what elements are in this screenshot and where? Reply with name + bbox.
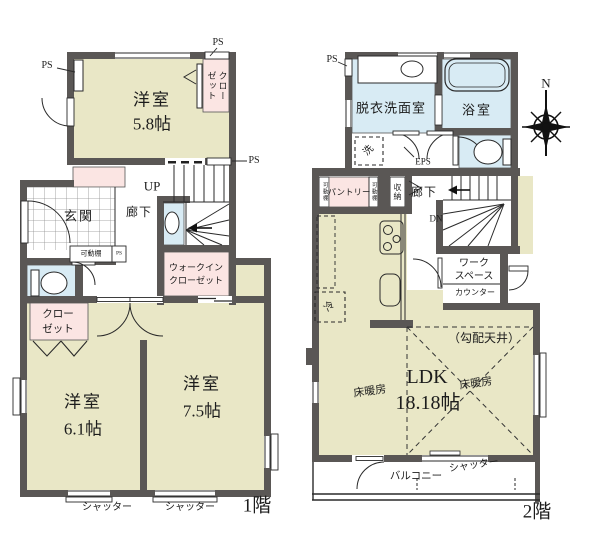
ldk-label: LDK <box>406 367 447 387</box>
sink-icon <box>401 61 423 77</box>
bathtub-icon <box>445 59 509 91</box>
movable-shelf-label-left: 可動棚 <box>321 182 327 202</box>
movable-shelf-label-right: 可動棚 <box>370 182 376 202</box>
room-61-label: 洋室 <box>64 394 102 411</box>
hallway-label-1f: 廊下 <box>126 206 152 218</box>
shutter-label-1: シャッター <box>82 503 132 513</box>
window-75-right <box>264 434 278 470</box>
ps-shaft-1f <box>74 60 83 91</box>
wic-label-1: ウォークイン <box>169 264 223 273</box>
eps-label: EPS <box>415 158 431 167</box>
genkan-label: 玄関 <box>64 210 94 223</box>
ps-label-1: PS <box>41 61 52 71</box>
movable-shelf-label-1f: 可動棚 <box>81 251 102 258</box>
bathroom-label: 浴室 <box>462 104 492 117</box>
sloped-ceiling-label: （勾配天井） <box>448 332 520 344</box>
washroom-label: 脱衣洗面室 <box>356 102 426 115</box>
window-61-bottom <box>66 490 112 502</box>
walk-in-closet-room <box>164 252 229 296</box>
dn-label: DN <box>430 215 443 224</box>
workspace-label-2: スペース <box>455 272 494 282</box>
closet-58-label-1: クロー <box>218 71 227 101</box>
balcony-label: バルコニー <box>390 472 442 483</box>
closet-label-2: ゼット <box>42 325 74 336</box>
toilet-icon-1f <box>31 270 67 296</box>
shutter-label-2: シャッター <box>165 503 215 513</box>
ps-label-4: PS <box>116 251 122 257</box>
counter-label: カウンター <box>455 289 495 297</box>
window-61-left <box>13 378 27 415</box>
floorplan-drawing <box>0 0 600 549</box>
toilet-icon-2f <box>474 140 502 164</box>
vanity-counter <box>358 56 437 83</box>
room-58-size: 5.8帖 <box>133 116 171 133</box>
shoe-cabinet <box>73 167 125 187</box>
room-75-size: 7.5帖 <box>183 403 221 420</box>
closet-label-1: クロー <box>42 310 74 321</box>
ldk-size: 18.18帖 <box>396 393 461 413</box>
floor-2-label: 2階 <box>523 503 552 522</box>
washbasin-icon <box>165 212 179 234</box>
workspace-label-1: ワーク <box>459 259 489 269</box>
hallway-label-2f: 廊下 <box>411 186 437 198</box>
room-61-size: 6.1帖 <box>64 421 102 438</box>
window-75-bottom <box>153 490 217 502</box>
ps-label-3: PS <box>248 156 259 166</box>
closet-58-label-2: ゼット <box>207 71 216 101</box>
room-75-label: 洋室 <box>183 376 221 393</box>
floor-1-label: 1階 <box>243 497 272 516</box>
window-58-top <box>115 52 190 59</box>
ps-label-2: PS <box>212 38 223 48</box>
room-58-label: 洋室 <box>133 92 171 109</box>
ps-label-2f: PS <box>326 55 337 65</box>
storage-label: 収納 <box>393 183 401 201</box>
pantry-label: パントリー <box>328 188 371 197</box>
north-label: N <box>541 77 550 90</box>
wic-label-2: クローゼット <box>169 277 223 286</box>
compass-icon <box>522 90 570 156</box>
up-label: UP <box>144 180 161 193</box>
floorplan-image: PS PS PS 洋室 5.8帖 クロー ゼット UP 玄関 廊下 可動棚 PS… <box>0 0 600 549</box>
